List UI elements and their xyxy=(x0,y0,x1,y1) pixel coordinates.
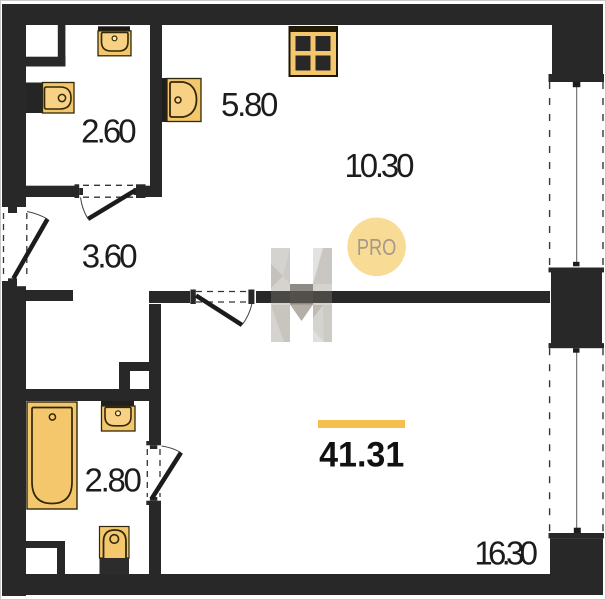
svg-text:16.30: 16.30 xyxy=(474,534,538,571)
svg-text:10.30: 10.30 xyxy=(345,147,415,184)
svg-text:2.80: 2.80 xyxy=(85,461,142,498)
svg-text:3.60: 3.60 xyxy=(82,238,138,275)
svg-text:5.80: 5.80 xyxy=(221,86,278,123)
svg-text:2.60: 2.60 xyxy=(81,112,136,149)
svg-text:41.31: 41.31 xyxy=(319,435,404,474)
svg-text:PRO: PRO xyxy=(357,234,397,260)
